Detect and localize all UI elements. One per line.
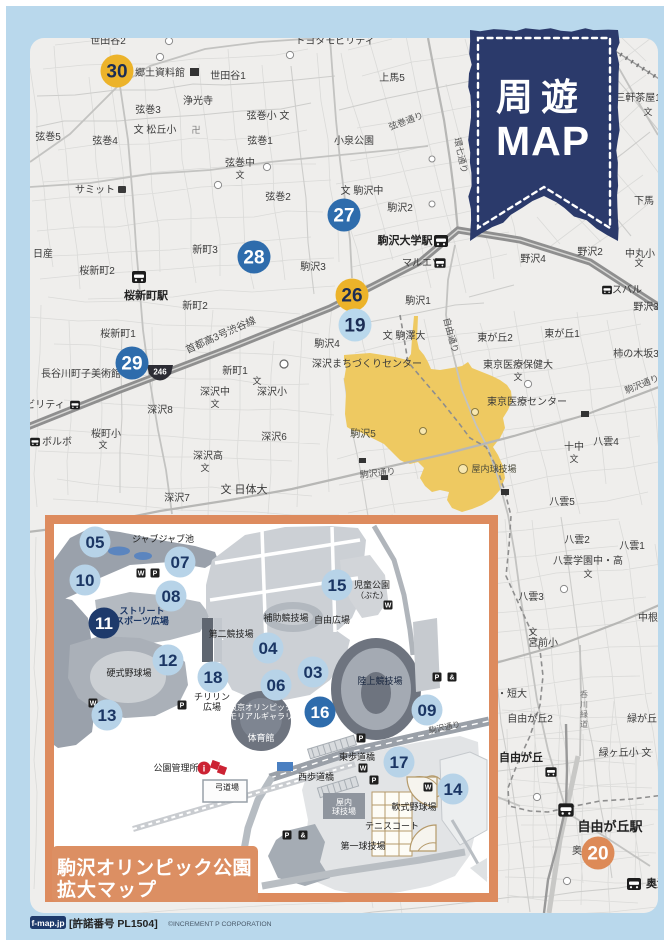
- svg-text:28: 28: [243, 248, 264, 269]
- svg-text:©INCREMENT P CORPORATION: ©INCREMENT P CORPORATION: [168, 920, 272, 928]
- svg-text:文: 文: [583, 568, 592, 579]
- svg-text:06: 06: [267, 676, 286, 695]
- svg-text:体育館: 体育館: [247, 732, 274, 743]
- svg-text:W: W: [138, 571, 145, 578]
- svg-text:P: P: [435, 675, 440, 682]
- svg-text:桜新町1: 桜新町1: [100, 327, 136, 340]
- svg-text:第二競技場: 第二競技場: [208, 628, 253, 639]
- svg-text:05: 05: [86, 533, 105, 552]
- svg-text:児童公園: 児童公園: [354, 579, 390, 590]
- svg-text:新町3: 新町3: [192, 243, 218, 256]
- svg-text:新町2: 新町2: [182, 299, 208, 312]
- svg-text:自由が丘: 自由が丘: [499, 750, 543, 764]
- svg-text:弦巻中: 弦巻中: [225, 156, 255, 169]
- svg-text:公園管理所: 公園管理所: [153, 762, 198, 773]
- svg-text:十中: 十中: [564, 440, 584, 453]
- svg-text:補助競技場: 補助競技場: [263, 612, 308, 623]
- svg-text:ストリート: ストリート: [119, 606, 164, 616]
- svg-text:緑が丘: 緑が丘: [627, 712, 657, 725]
- svg-text:広場: 広場: [203, 701, 221, 712]
- svg-text:東京オリンピック: 東京オリンピック: [229, 702, 293, 712]
- svg-text:下馬: 下馬: [634, 195, 654, 207]
- svg-text:自由が丘2: 自由が丘2: [507, 712, 553, 725]
- svg-text:軟式野球場: 軟式野球場: [391, 801, 436, 812]
- svg-text:浄光寺: 浄光寺: [183, 94, 213, 107]
- svg-text:08: 08: [162, 587, 181, 606]
- svg-text:ジャブジャブ池: ジャブジャブ池: [132, 533, 194, 544]
- svg-text:W: W: [385, 603, 392, 610]
- svg-text:桜町小: 桜町小: [91, 427, 121, 440]
- svg-text:文: 文: [252, 375, 261, 386]
- svg-text:弦巻小 文: 弦巻小 文: [247, 109, 290, 122]
- svg-text:18: 18: [204, 668, 223, 687]
- svg-text:16: 16: [311, 703, 330, 722]
- svg-text:11: 11: [95, 614, 113, 633]
- svg-text:09: 09: [418, 701, 437, 720]
- svg-text:深沢小: 深沢小: [257, 385, 287, 398]
- svg-text:27: 27: [333, 206, 354, 227]
- svg-text:文: 文: [200, 462, 209, 473]
- svg-text:自由広場: 自由広場: [314, 614, 350, 625]
- svg-text:テニスコート: テニスコート: [365, 821, 419, 831]
- svg-text:東歩道橋: 東歩道橋: [339, 751, 375, 762]
- svg-text:宮前小: 宮前小: [528, 636, 558, 649]
- svg-text:文: 文: [528, 626, 537, 637]
- svg-text:駒沢大学駅: 駒沢大学駅: [378, 233, 433, 247]
- svg-text:駒沢4: 駒沢4: [314, 337, 340, 350]
- svg-text:14: 14: [444, 780, 463, 799]
- svg-text:チリリン: チリリン: [194, 692, 230, 702]
- svg-text:弦巻5: 弦巻5: [35, 130, 61, 143]
- svg-text:文: 文: [210, 398, 219, 409]
- svg-text:野沢3: 野沢3: [633, 300, 659, 313]
- svg-text:自由が丘駅: 自由が丘駅: [577, 819, 643, 834]
- svg-text:W: W: [425, 785, 432, 792]
- svg-text:弦巻1: 弦巻1: [247, 134, 273, 147]
- svg-text:郷土資料館: 郷土資料館: [135, 66, 185, 79]
- svg-text:桜新町2: 桜新町2: [79, 264, 115, 277]
- svg-text:15: 15: [328, 576, 347, 595]
- svg-text:八雲5: 八雲5: [549, 496, 575, 508]
- svg-text:&: &: [449, 675, 454, 682]
- svg-text:深沢まちづくりセンター: 深沢まちづくりセンター: [312, 357, 422, 370]
- svg-text:19: 19: [344, 316, 365, 337]
- svg-text:屋内球技場: 屋内球技場: [471, 463, 516, 474]
- svg-text:12: 12: [159, 651, 178, 670]
- svg-text:246: 246: [153, 368, 167, 377]
- svg-text:MAP: MAP: [496, 118, 590, 164]
- svg-text:東京医療センター: 東京医療センター: [487, 395, 567, 408]
- svg-text:（ぶた）: （ぶた）: [356, 591, 388, 600]
- svg-text:野沢2: 野沢2: [577, 245, 603, 258]
- svg-text:駒沢5: 駒沢5: [350, 427, 376, 440]
- svg-text:10: 10: [76, 571, 95, 590]
- svg-text:17: 17: [390, 753, 409, 772]
- svg-text:&: &: [300, 833, 305, 840]
- svg-text:中根: 中根: [638, 611, 658, 624]
- svg-text:道: 道: [580, 719, 588, 729]
- svg-text:P: P: [359, 736, 364, 743]
- svg-text:29: 29: [121, 354, 142, 375]
- svg-text:八雲3: 八雲3: [518, 591, 544, 603]
- svg-text:小泉公園: 小泉公園: [334, 134, 374, 147]
- svg-text:駒沢3: 駒沢3: [300, 260, 326, 273]
- svg-text:ビリティ: ビリティ: [25, 399, 64, 411]
- svg-text:上馬5: 上馬5: [379, 72, 405, 84]
- svg-text:陸上競技場: 陸上競技場: [357, 675, 402, 686]
- svg-text:硬式野球場: 硬式野球場: [106, 667, 151, 678]
- svg-text:03: 03: [304, 663, 323, 682]
- svg-text:文: 文: [569, 453, 578, 464]
- svg-text:駒沢1: 駒沢1: [405, 294, 431, 307]
- svg-text:新町1: 新町1: [222, 364, 248, 377]
- svg-text:弦巻2: 弦巻2: [265, 190, 291, 203]
- svg-text:八雲2: 八雲2: [564, 534, 590, 546]
- svg-text:世田谷1: 世田谷1: [210, 70, 246, 82]
- svg-text:26: 26: [341, 286, 362, 307]
- svg-text:P: P: [153, 571, 158, 578]
- svg-text:文 日体大: 文 日体大: [220, 482, 267, 496]
- svg-text:サミット: サミット: [75, 184, 115, 196]
- svg-text:文: 文: [235, 169, 244, 180]
- svg-text:深沢6: 深沢6: [261, 430, 287, 443]
- svg-text:卍: 卍: [191, 125, 200, 135]
- svg-text:東京医療保健大: 東京医療保健大: [483, 358, 553, 371]
- svg-text:スバル: スバル: [612, 284, 642, 296]
- svg-text:弓道場: 弓道場: [215, 782, 239, 792]
- svg-text:西歩道橋: 西歩道橋: [298, 771, 334, 782]
- svg-text:深沢高: 深沢高: [193, 449, 223, 462]
- svg-text:野沢4: 野沢4: [520, 252, 546, 265]
- svg-text:周遊: 周遊: [496, 77, 586, 118]
- svg-text:文: 文: [643, 106, 652, 117]
- svg-text:文: 文: [98, 439, 107, 450]
- svg-text:桜新町駅: 桜新町駅: [124, 288, 168, 302]
- svg-text:文 駒沢中: 文 駒沢中: [341, 184, 384, 197]
- svg-text:P: P: [180, 703, 185, 710]
- svg-text:スポーツ広場: スポーツ広場: [115, 615, 169, 626]
- svg-text:07: 07: [171, 553, 190, 572]
- svg-text:[許諾番号 PL1504]: [許諾番号 PL1504]: [69, 917, 158, 930]
- svg-text:文: 文: [634, 257, 643, 268]
- svg-text:P: P: [372, 778, 377, 785]
- svg-text:駒沢2: 駒沢2: [387, 201, 413, 214]
- svg-text:奥: 奥: [572, 844, 582, 857]
- svg-text:20: 20: [587, 844, 608, 865]
- svg-text:文: 文: [513, 371, 522, 382]
- svg-text:文 松丘小: 文 松丘小: [134, 123, 177, 136]
- svg-text:04: 04: [259, 639, 278, 658]
- svg-text:三軒茶屋1: 三軒茶屋1: [615, 91, 661, 104]
- svg-text:屋内: 屋内: [336, 797, 352, 807]
- svg-text:弦巻4: 弦巻4: [92, 134, 118, 147]
- svg-text:・短大: ・短大: [497, 687, 527, 700]
- svg-text:深沢中: 深沢中: [200, 385, 230, 398]
- svg-text:30: 30: [106, 62, 127, 83]
- svg-text:東が丘2: 東が丘2: [477, 331, 513, 344]
- svg-text:P: P: [285, 833, 290, 840]
- svg-text:i: i: [203, 764, 206, 774]
- svg-text:メモリアルギャラリー: メモリアルギャラリー: [221, 712, 301, 721]
- svg-text:球技場: 球技場: [332, 806, 356, 816]
- svg-text:f-map.jp: f-map.jp: [31, 918, 64, 928]
- svg-text:川: 川: [580, 700, 588, 709]
- svg-text:13: 13: [98, 706, 117, 725]
- svg-text:W: W: [360, 766, 367, 773]
- svg-text:緑: 緑: [580, 709, 588, 719]
- svg-text:東が丘1: 東が丘1: [544, 327, 580, 340]
- svg-text:駒沢オリンピック公園: 駒沢オリンピック公園: [57, 856, 252, 879]
- svg-text:深沢7: 深沢7: [164, 491, 190, 504]
- svg-text:第一球技場: 第一球技場: [340, 840, 385, 851]
- svg-text:文 駒澤大: 文 駒澤大: [383, 329, 426, 342]
- svg-text:八雲学園中・高: 八雲学園中・高: [553, 554, 623, 567]
- svg-text:緑ヶ丘小 文: 緑ヶ丘小 文: [599, 746, 652, 759]
- svg-text:ボルボ: ボルボ: [42, 436, 72, 448]
- svg-text:弦巻3: 弦巻3: [135, 103, 161, 116]
- svg-text:呑: 呑: [580, 689, 588, 699]
- svg-text:拡大マップ: 拡大マップ: [57, 878, 157, 901]
- svg-text:八雲1: 八雲1: [619, 540, 645, 552]
- svg-text:長谷川町子美術館: 長谷川町子美術館: [41, 367, 121, 380]
- svg-text:柿の木坂3: 柿の木坂3: [613, 347, 659, 360]
- svg-text:深沢8: 深沢8: [147, 403, 173, 416]
- svg-text:八雲4: 八雲4: [593, 436, 619, 448]
